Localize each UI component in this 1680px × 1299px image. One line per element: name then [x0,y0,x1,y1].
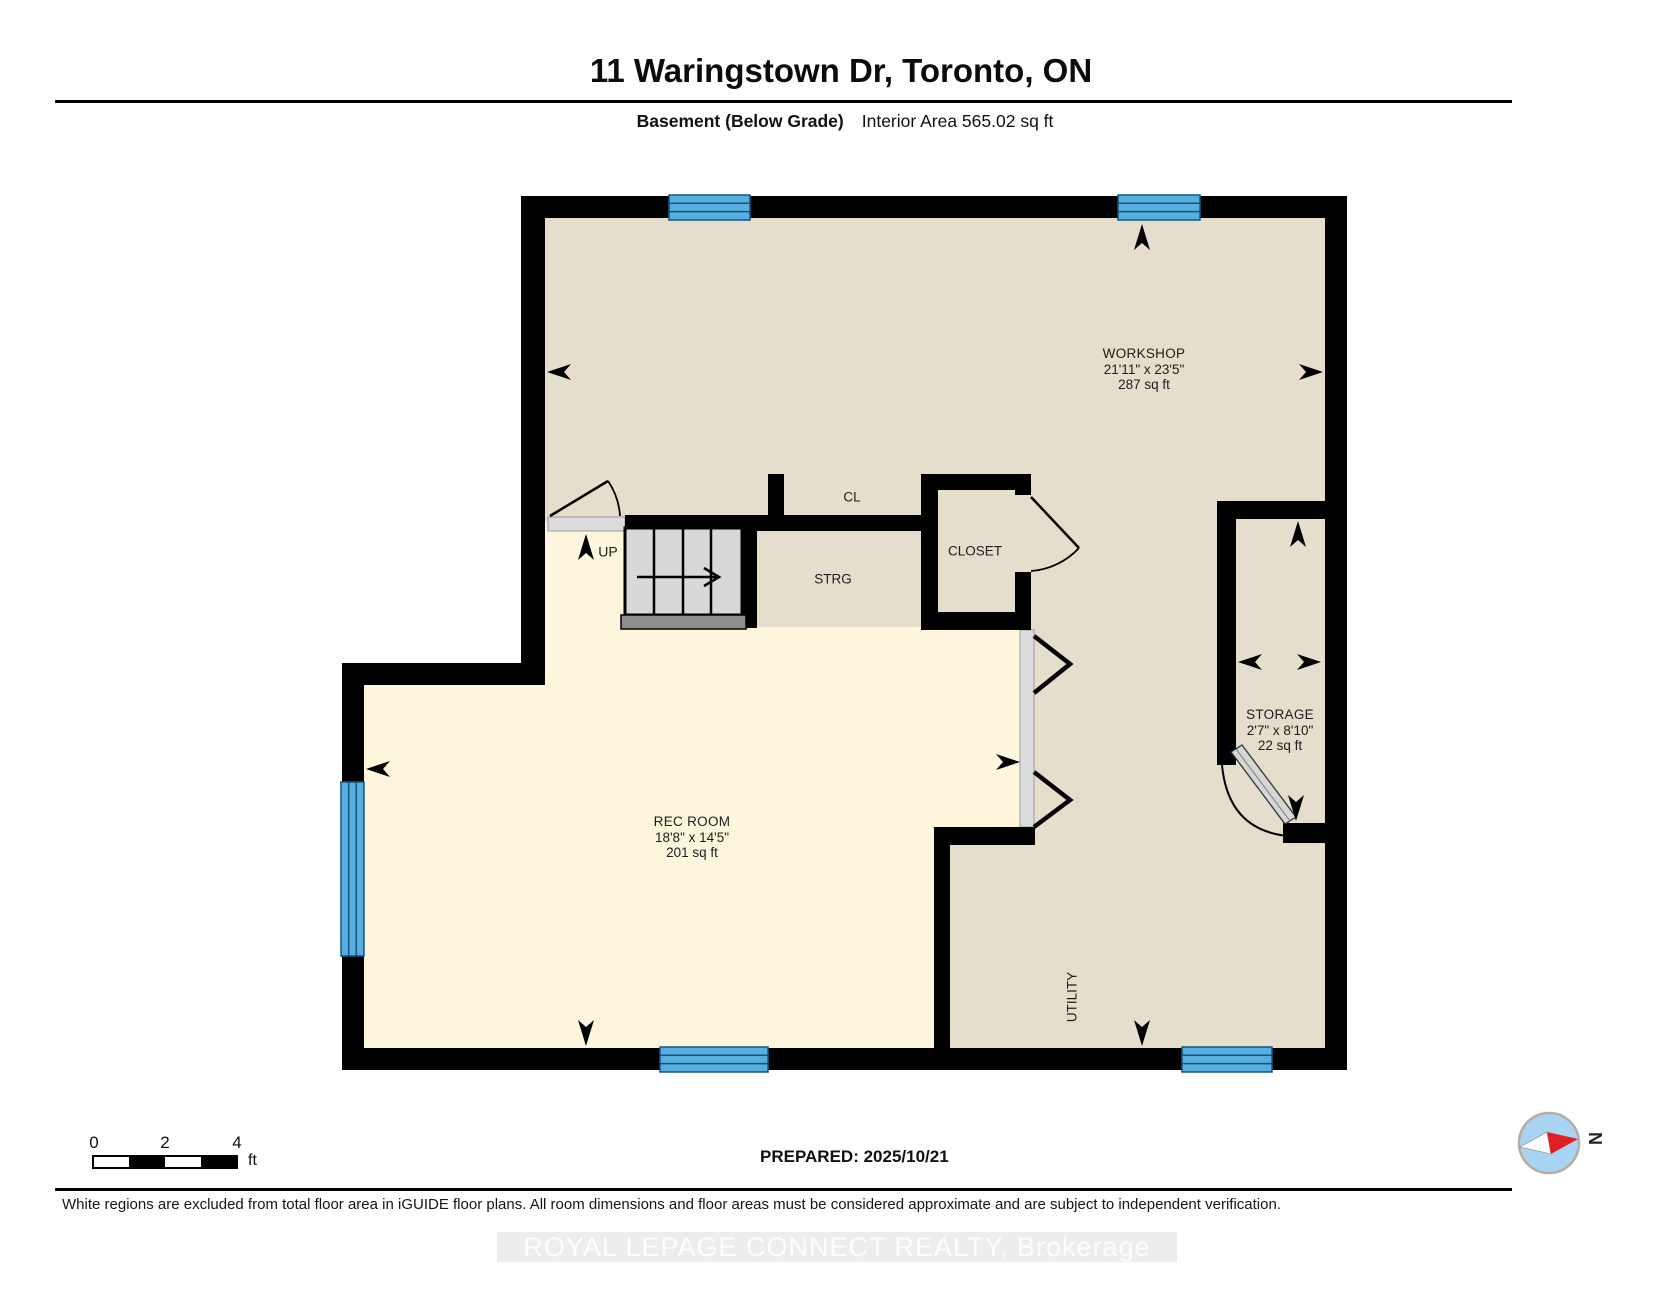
brokerage-watermark-text: ROYAL LEPAGE CONNECT REALTY, Brokerage [523,1232,1150,1263]
footer-divider [55,1188,1512,1191]
window-bottom-right [1182,1047,1272,1072]
floor-plan [0,0,1680,1299]
storage-area: 22 sq ft [1246,738,1314,754]
prepared-date: PREPARED: 2025/10/21 [760,1147,949,1167]
scale-unit: ft [248,1152,257,1170]
workshop-label: WORKSHOP 21'11" x 23'5" 287 sq ft [1103,346,1186,393]
storage-name: STORAGE [1246,707,1314,723]
storage-label: STORAGE 2'7" x 8'10" 22 sq ft [1246,707,1314,754]
floor-plan-page: { "header": { "title": "11 Waringstown D… [0,0,1680,1299]
scale-tick-0: 0 [89,1133,98,1153]
scale-tick-2: 2 [160,1133,169,1153]
rec-room-dimensions: 18'8" x 14'5" [654,829,731,845]
compass-icon [1519,1113,1579,1173]
wall-storage-bottom [1283,823,1347,843]
wall-storage-top [1217,501,1347,519]
strg-label: STRG [814,571,852,587]
rec-room-opening-threshold [1020,630,1034,827]
wall-cl-stub [768,474,784,519]
stair-door-threshold [548,517,625,531]
window-top-left [669,195,750,220]
wall-right [1325,196,1347,1070]
window-top-right [1118,195,1200,220]
workshop-area: 287 sq ft [1103,377,1186,393]
workshop-dimensions: 21'11" x 23'5" [1103,361,1186,377]
wall-west [521,196,545,685]
window-bottom-left [660,1047,768,1072]
disclaimer-text: White regions are excluded from total fl… [62,1196,1281,1213]
compass-north-label: N [1584,1132,1605,1145]
rec-room-area: 201 sq ft [654,845,731,861]
rec-room-label: REC ROOM 18'8" x 14'5" 201 sq ft [654,814,731,861]
stair-nosing-bar [621,615,746,629]
wall-utility-vertical [934,827,950,1048]
up-label: UP [598,544,617,560]
utility-label: UTILITY [1064,972,1080,1022]
window-left [341,782,364,956]
storage-dimensions: 2'7" x 8'10" [1246,722,1314,738]
wall-stairs-right [742,528,757,628]
wall-top [521,196,1347,218]
staircase [621,528,746,629]
rec-room-name: REC ROOM [654,814,731,830]
scale-bar [93,1156,237,1168]
cl-label: CL [843,489,860,505]
wall-step [342,663,545,685]
wall-storage-left [1217,501,1236,765]
closet-label: CLOSET [948,543,1002,559]
scale-tick-4: 4 [232,1133,241,1153]
closet-door-gap [1015,495,1031,572]
workshop-name: WORKSHOP [1103,346,1186,362]
brokerage-watermark: ROYAL LEPAGE CONNECT REALTY, Brokerage [497,1232,1177,1262]
